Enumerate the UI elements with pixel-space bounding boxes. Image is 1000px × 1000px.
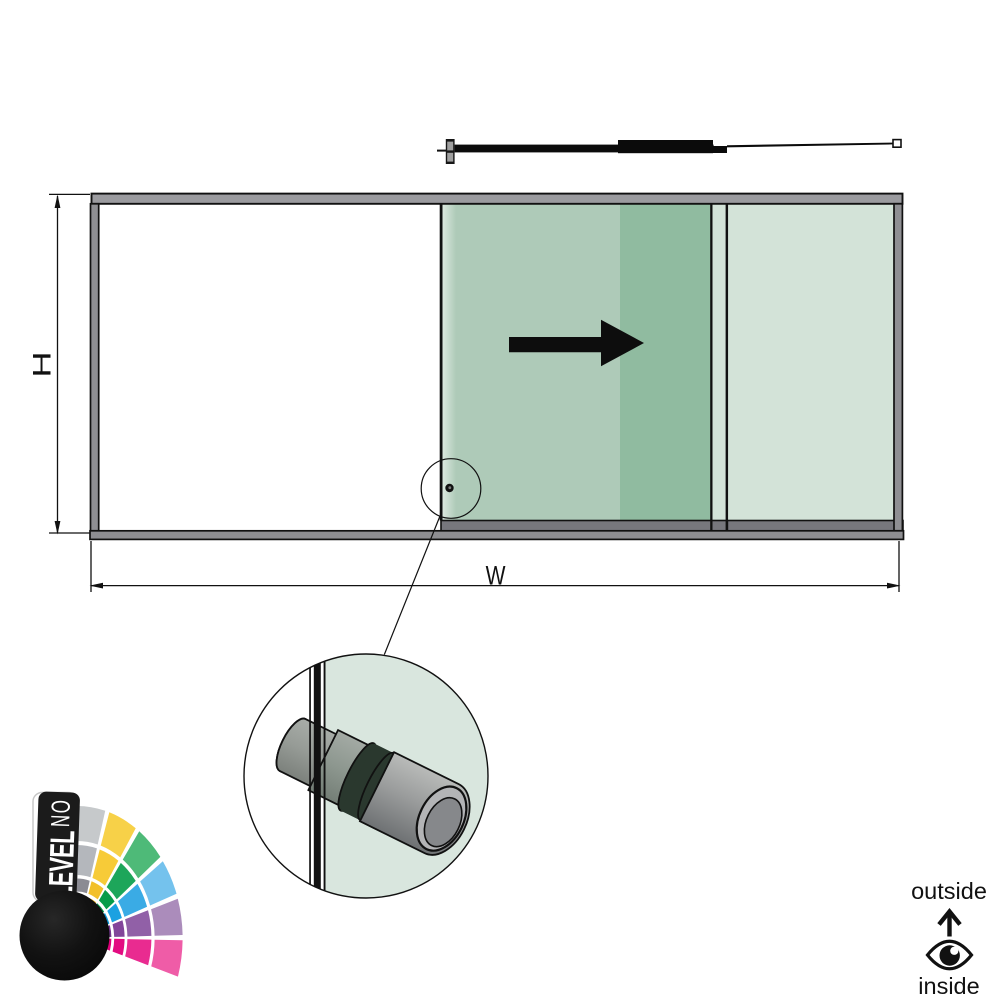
svg-text:W: W (486, 561, 506, 591)
svg-text:H: H (28, 351, 56, 377)
svg-text:inside: inside (918, 973, 979, 999)
svg-text:ON: ON (45, 800, 76, 830)
svg-text:LEVEL: LEVEL (42, 830, 82, 900)
svg-text:outside: outside (911, 878, 987, 904)
